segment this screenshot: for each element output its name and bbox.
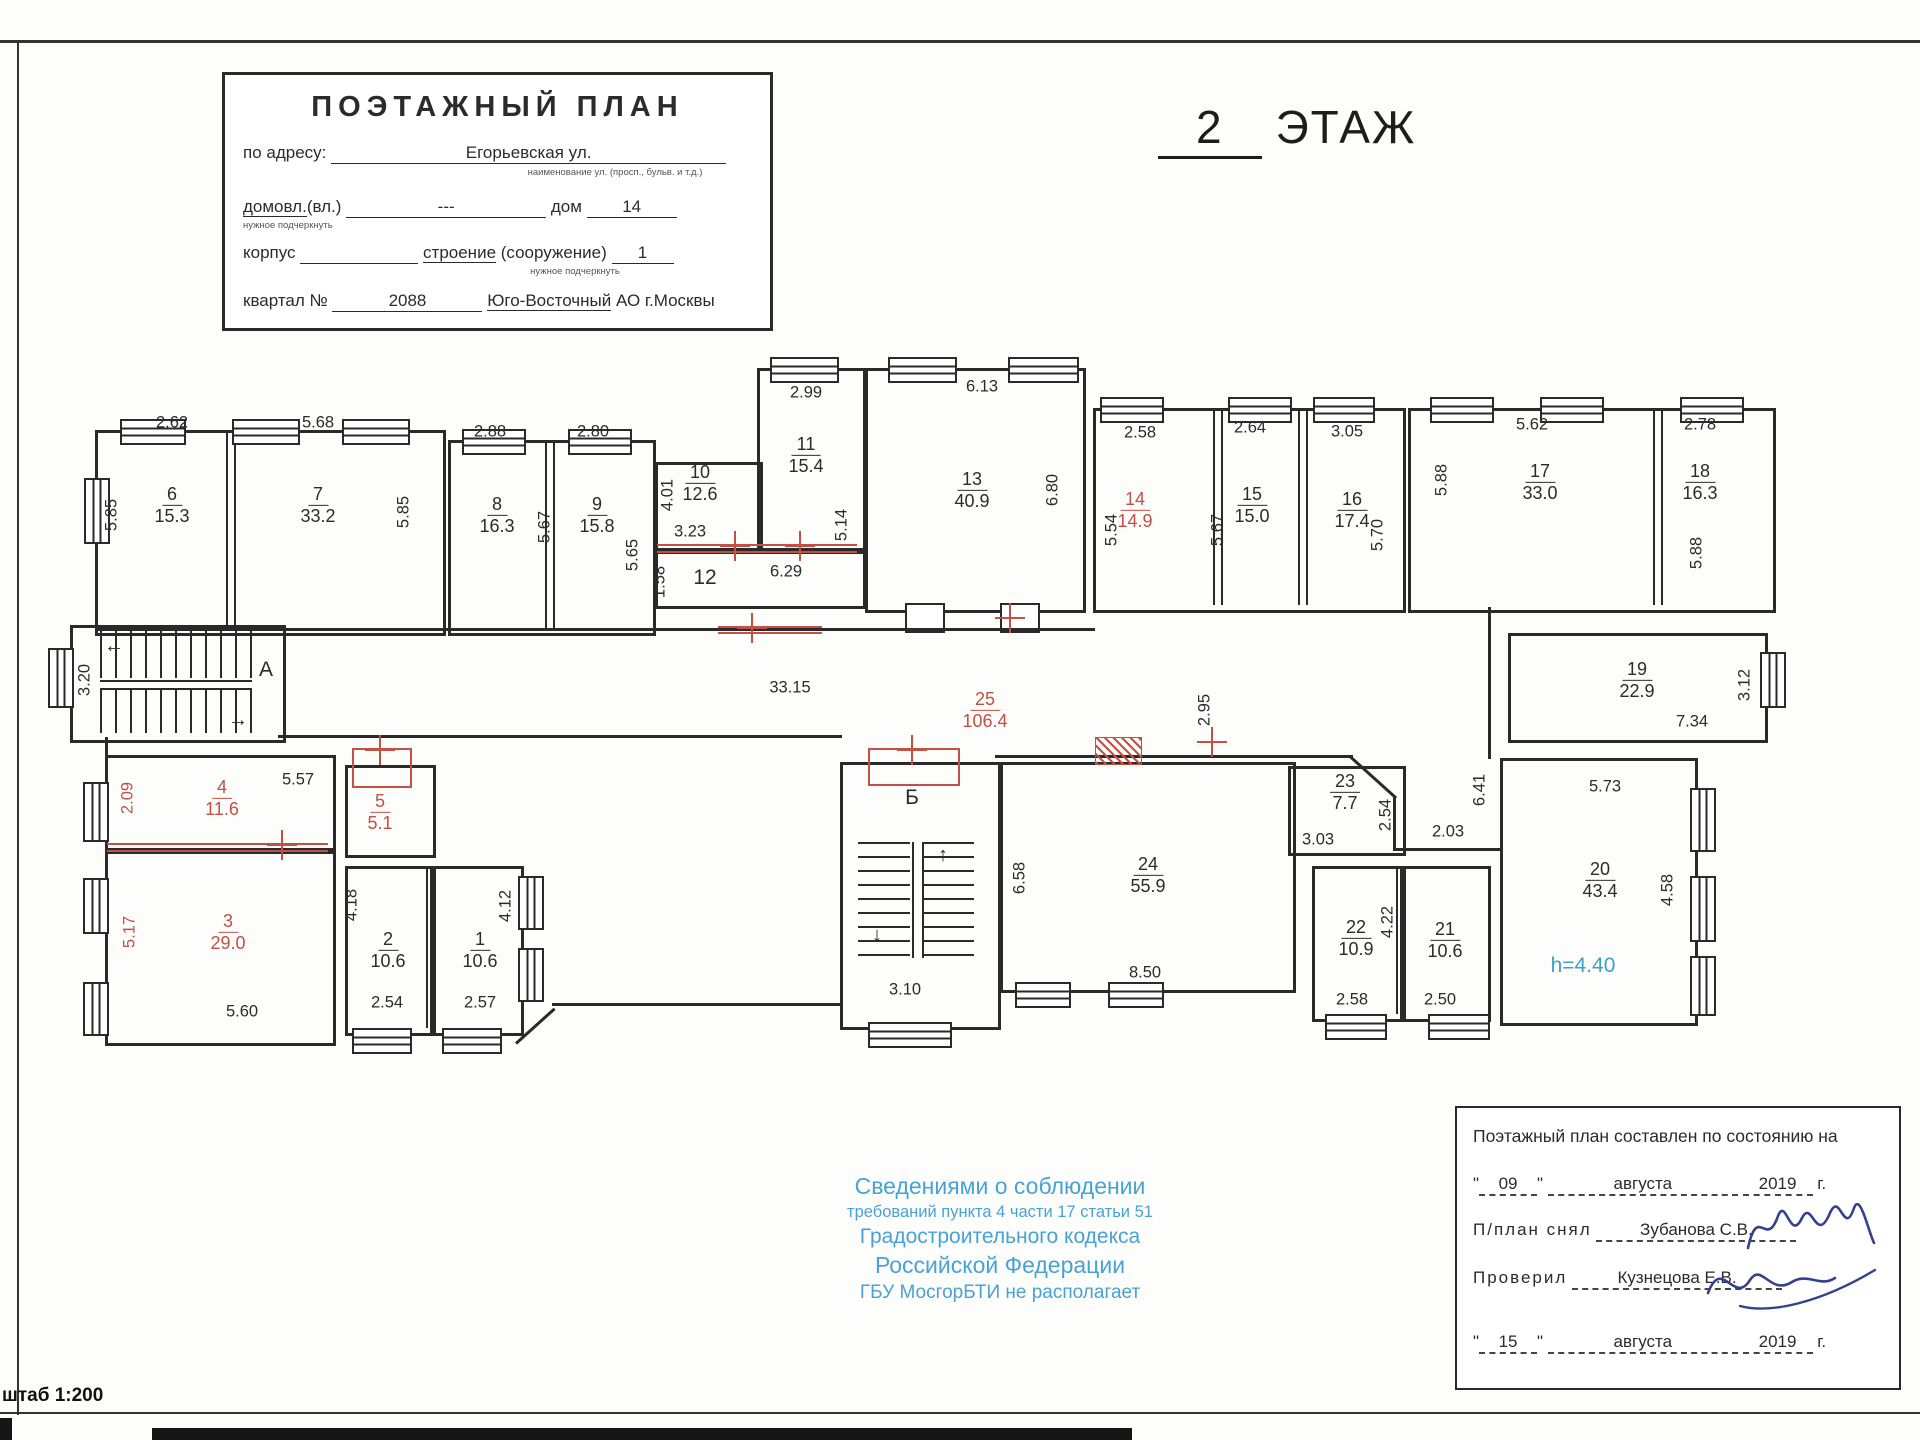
plan-mark-h=4.40: h=4.40 — [1551, 954, 1616, 978]
dimension-label: 3.23 — [674, 523, 706, 542]
dimension-label: 33.15 — [769, 679, 810, 698]
address-label: по адресу: — [243, 143, 326, 162]
dimension-label: 2.58 — [1124, 424, 1156, 443]
corridor-end-wall — [1488, 607, 1491, 759]
partition-wall — [1298, 410, 1308, 605]
stair-direction-arrow: → — [228, 710, 248, 730]
room-label-7: 733.2 — [300, 484, 335, 526]
scan-artifact-bar — [152, 1428, 1132, 1440]
scan-border-bottom — [0, 1412, 1920, 1414]
dimension-label: 2.50 — [1424, 991, 1456, 1010]
stamp-date1-month: августа — [1548, 1174, 1738, 1196]
dimension-label: 5.85 — [395, 496, 414, 528]
stroenie-label: строение — [423, 243, 496, 263]
dimension-label: 5.17 — [121, 916, 140, 948]
district-rest: АО г.Москвы — [611, 291, 714, 310]
window — [1428, 1014, 1490, 1040]
window — [1008, 357, 1079, 383]
partition-wall — [1653, 410, 1663, 605]
partition-wall — [426, 868, 436, 1028]
room-label-10: 1012.6 — [682, 462, 717, 504]
room-label-6: 615.3 — [154, 484, 189, 526]
ownership-note: нужное подчеркнуть — [243, 220, 333, 231]
dimension-label: 6.13 — [966, 378, 998, 397]
red-cross-mark — [737, 613, 767, 643]
disclaimer-line: Градостроительного кодекса — [808, 1223, 1192, 1250]
kvartal-label: квартал № — [243, 291, 328, 310]
dimension-label: 4.12 — [497, 890, 516, 922]
dimension-label: 2.78 — [1684, 416, 1716, 435]
house-value: 14 — [587, 197, 677, 218]
window — [1760, 652, 1786, 708]
room-label-16: 1617.4 — [1334, 489, 1369, 531]
stamp-title: Поэтажный план составлен по состоянию на — [1473, 1126, 1838, 1147]
corridor-wall — [995, 755, 1353, 758]
quote-mark: " — [1537, 1332, 1543, 1351]
disclaimer-line: ГБУ МосгорБТИ не располагает — [808, 1281, 1192, 1306]
dimension-label: 5.14 — [833, 509, 852, 541]
red-cross-mark — [785, 531, 815, 561]
lobby-wall — [1393, 848, 1503, 851]
room-label-25: 25106.4 — [962, 689, 1007, 731]
dimension-label: 5.67 — [1209, 514, 1228, 546]
scale-note: штаб 1:200 — [2, 1385, 103, 1407]
red-cross-mark — [267, 830, 297, 860]
scan-border-left — [17, 40, 19, 1415]
red-cross-mark — [897, 735, 927, 765]
plan-mark-А: А — [259, 658, 273, 682]
stamp-date1-day: 09 — [1479, 1174, 1537, 1196]
red-cross-mark — [365, 735, 395, 765]
dimension-label: 5.88 — [1688, 537, 1707, 569]
red-cross-mark — [1197, 727, 1227, 757]
window — [83, 878, 109, 934]
stair-direction-arrow: ↓ — [872, 925, 882, 945]
quote-mark: " — [1537, 1174, 1543, 1193]
room-17-18-outline — [1408, 408, 1776, 613]
window — [1690, 788, 1716, 852]
window — [1690, 956, 1716, 1016]
dimension-label: 5.62 — [1516, 416, 1548, 435]
room-label-3: 329.0 — [210, 911, 245, 953]
surveyor-label: П/план снял — [1473, 1220, 1592, 1239]
room-label-20: 2043.4 — [1582, 859, 1617, 901]
stair-b-treads — [922, 842, 974, 958]
room-12-outline — [655, 548, 866, 609]
window — [1313, 397, 1375, 423]
room-label-14: 1414.9 — [1117, 489, 1152, 531]
stair-b-treads — [858, 842, 910, 958]
dimension-label: 5.85 — [103, 499, 122, 531]
dimension-label: 2.54 — [371, 994, 403, 1013]
dimension-label: 6.29 — [770, 563, 802, 582]
partition-wall — [1396, 868, 1406, 1014]
room-label-4: 411.6 — [205, 777, 239, 819]
window — [518, 876, 544, 930]
window — [1325, 1014, 1387, 1040]
room-label-24: 2455.9 — [1130, 854, 1165, 896]
room-label-5: 55.1 — [367, 791, 392, 833]
house-label: дом — [551, 197, 582, 216]
dimension-label: 2.95 — [1196, 694, 1215, 726]
dimension-label: 5.68 — [302, 414, 334, 433]
dimension-label: 5.67 — [536, 511, 555, 543]
window — [770, 357, 839, 383]
room-label-2: 210.6 — [370, 929, 405, 971]
window — [342, 419, 410, 445]
dimension-label: 6.80 — [1044, 474, 1063, 506]
window — [352, 1028, 412, 1054]
stamp-block: Поэтажный план составлен по состоянию на… — [1455, 1106, 1901, 1390]
title-block: ПОЭТАЖНЫЙ ПЛАН по адресу: Егорьевская ул… — [222, 72, 773, 331]
red-hatched-wall — [1095, 737, 1142, 765]
window — [83, 982, 109, 1036]
dimension-label: 1.58 — [651, 566, 670, 598]
dimension-label: 2.57 — [464, 994, 496, 1013]
room-label-8: 816.3 — [479, 494, 514, 536]
room-label-17: 1733.0 — [1522, 461, 1557, 503]
room-label-18: 1816.3 — [1682, 461, 1717, 503]
red-cross-mark — [995, 603, 1025, 633]
checker-label: Проверил — [1473, 1268, 1567, 1287]
window — [1015, 982, 1071, 1008]
window — [442, 1028, 502, 1054]
window — [1100, 397, 1164, 423]
dimension-label: 5.88 — [1433, 464, 1452, 496]
dimension-label: 2.62 — [156, 414, 188, 433]
address-note: наименование ул. (просп., бульв. и т.д.) — [465, 167, 765, 178]
address-value: Егорьевская ул. — [331, 143, 726, 164]
dimension-label: 2.80 — [577, 423, 609, 442]
stair-direction-arrow: ← — [104, 636, 124, 656]
ownership-label: домовл. — [243, 197, 307, 217]
red-cross-mark — [720, 531, 750, 561]
dimension-label: 6.58 — [1011, 862, 1030, 894]
red-altered-wall — [657, 544, 857, 553]
district: Юго-Восточный — [487, 291, 611, 311]
outer-wall — [105, 737, 108, 757]
window — [232, 419, 300, 445]
room-label-15: 1515.0 — [1234, 484, 1269, 526]
window — [868, 1022, 952, 1048]
plan-mark-12: 12 — [693, 566, 716, 590]
room-label-1: 110.6 — [462, 929, 497, 971]
corridor-wall — [278, 735, 842, 738]
dimension-label: 5.57 — [282, 771, 314, 790]
dimension-label: 3.10 — [889, 981, 921, 1000]
document-title: ПОЭТАЖНЫЙ ПЛАН — [225, 91, 770, 124]
dimension-label: 4.01 — [659, 479, 678, 511]
year-suffix: г. — [1817, 1174, 1826, 1193]
window — [1540, 397, 1604, 423]
outer-wall — [552, 1003, 842, 1006]
window — [1430, 397, 1494, 423]
window — [888, 357, 957, 383]
dimension-label: 3.12 — [1736, 669, 1755, 701]
dimension-label: 5.65 — [624, 539, 643, 571]
scan-artifact-blob — [0, 1418, 12, 1440]
floor-number: 2 — [1158, 100, 1262, 159]
dimension-label: 4.22 — [1379, 906, 1398, 938]
dimension-label: 7.34 — [1676, 713, 1708, 732]
disclaimer-line: требований пункта 4 части 17 статьи 51 — [808, 1202, 1192, 1223]
stamp-date2-month: августа — [1548, 1332, 1738, 1354]
room-label-9: 915.8 — [579, 494, 614, 536]
room-label-19: 1922.9 — [1619, 659, 1654, 701]
partition-wall — [1213, 410, 1223, 605]
window — [1690, 876, 1716, 942]
stroenie-label-rest: (сооружение) — [496, 243, 607, 262]
dimension-label: 2.99 — [790, 384, 822, 403]
window — [83, 782, 109, 842]
red-altered-wall — [718, 626, 822, 634]
floor-word: ЭТАЖ — [1262, 100, 1417, 154]
ownership-label-rest: (вл.) — [307, 197, 342, 216]
stamp-date2-year: 2019 — [1743, 1332, 1813, 1354]
room-label-11: 1115.4 — [788, 434, 823, 476]
room-label-22: 2210.9 — [1338, 917, 1373, 959]
dimension-label: 3.20 — [76, 664, 95, 696]
disclaimer-line: Российской Федерации — [808, 1251, 1192, 1281]
dimension-label: 3.05 — [1331, 423, 1363, 442]
stroenie-note: нужное подчеркнуть — [475, 266, 675, 277]
dimension-label: 2.64 — [1234, 419, 1266, 438]
dimension-label: 5.54 — [1103, 514, 1122, 546]
dimension-label: 5.70 — [1369, 519, 1388, 551]
dimension-label: 4.58 — [1659, 874, 1678, 906]
surveyor-name: Зубанова С.В. — [1596, 1220, 1796, 1242]
korpus-label: корпус — [243, 243, 296, 262]
stamp-date2-day: 15 — [1479, 1332, 1537, 1354]
stair-direction-arrow: ↑ — [938, 845, 948, 865]
dimension-label: 2.03 — [1432, 823, 1464, 842]
dimension-label: 2.58 — [1336, 991, 1368, 1010]
plan-mark-Б: Б — [905, 786, 919, 810]
dimension-label: 6.41 — [1471, 774, 1490, 806]
window — [48, 648, 74, 708]
disclaimer-block: Сведениями о соблюдении требований пункт… — [808, 1172, 1192, 1305]
floor-heading: 2ЭТАЖ — [1158, 100, 1416, 159]
stroenie-value: 1 — [612, 243, 674, 264]
checker-name: Кузнецова Е.В. — [1572, 1268, 1782, 1290]
room-6-7-outline — [95, 430, 446, 636]
window — [518, 948, 544, 1002]
dimension-label: 3.03 — [1302, 831, 1334, 850]
dimension-label: 5.60 — [226, 1003, 258, 1022]
room-label-21: 2110.6 — [1427, 919, 1462, 961]
window — [1108, 982, 1164, 1008]
scan-border-top — [0, 40, 1920, 43]
disclaimer-line: Сведениями о соблюдении — [808, 1172, 1192, 1202]
stamp-date1-year: 2019 — [1743, 1174, 1813, 1196]
year-suffix: г. — [1817, 1332, 1826, 1351]
room-label-23: 237.7 — [1330, 771, 1360, 813]
dimension-label: 2.54 — [1377, 799, 1396, 831]
scanned-floor-plan-page: ПОЭТАЖНЫЙ ПЛАН по адресу: Егорьевская ул… — [0, 0, 1920, 1440]
kvartal-value: 2088 — [332, 291, 482, 312]
ownership-value: --- — [346, 197, 546, 218]
room-label-13: 1340.9 — [954, 469, 989, 511]
dimension-label: 4.18 — [343, 889, 362, 921]
dimension-label: 2.09 — [119, 782, 138, 814]
dimension-label: 2.88 — [474, 423, 506, 442]
dimension-label: 8.50 — [1129, 964, 1161, 983]
partition-wall — [226, 432, 236, 628]
dimension-label: 5.73 — [1589, 778, 1621, 797]
